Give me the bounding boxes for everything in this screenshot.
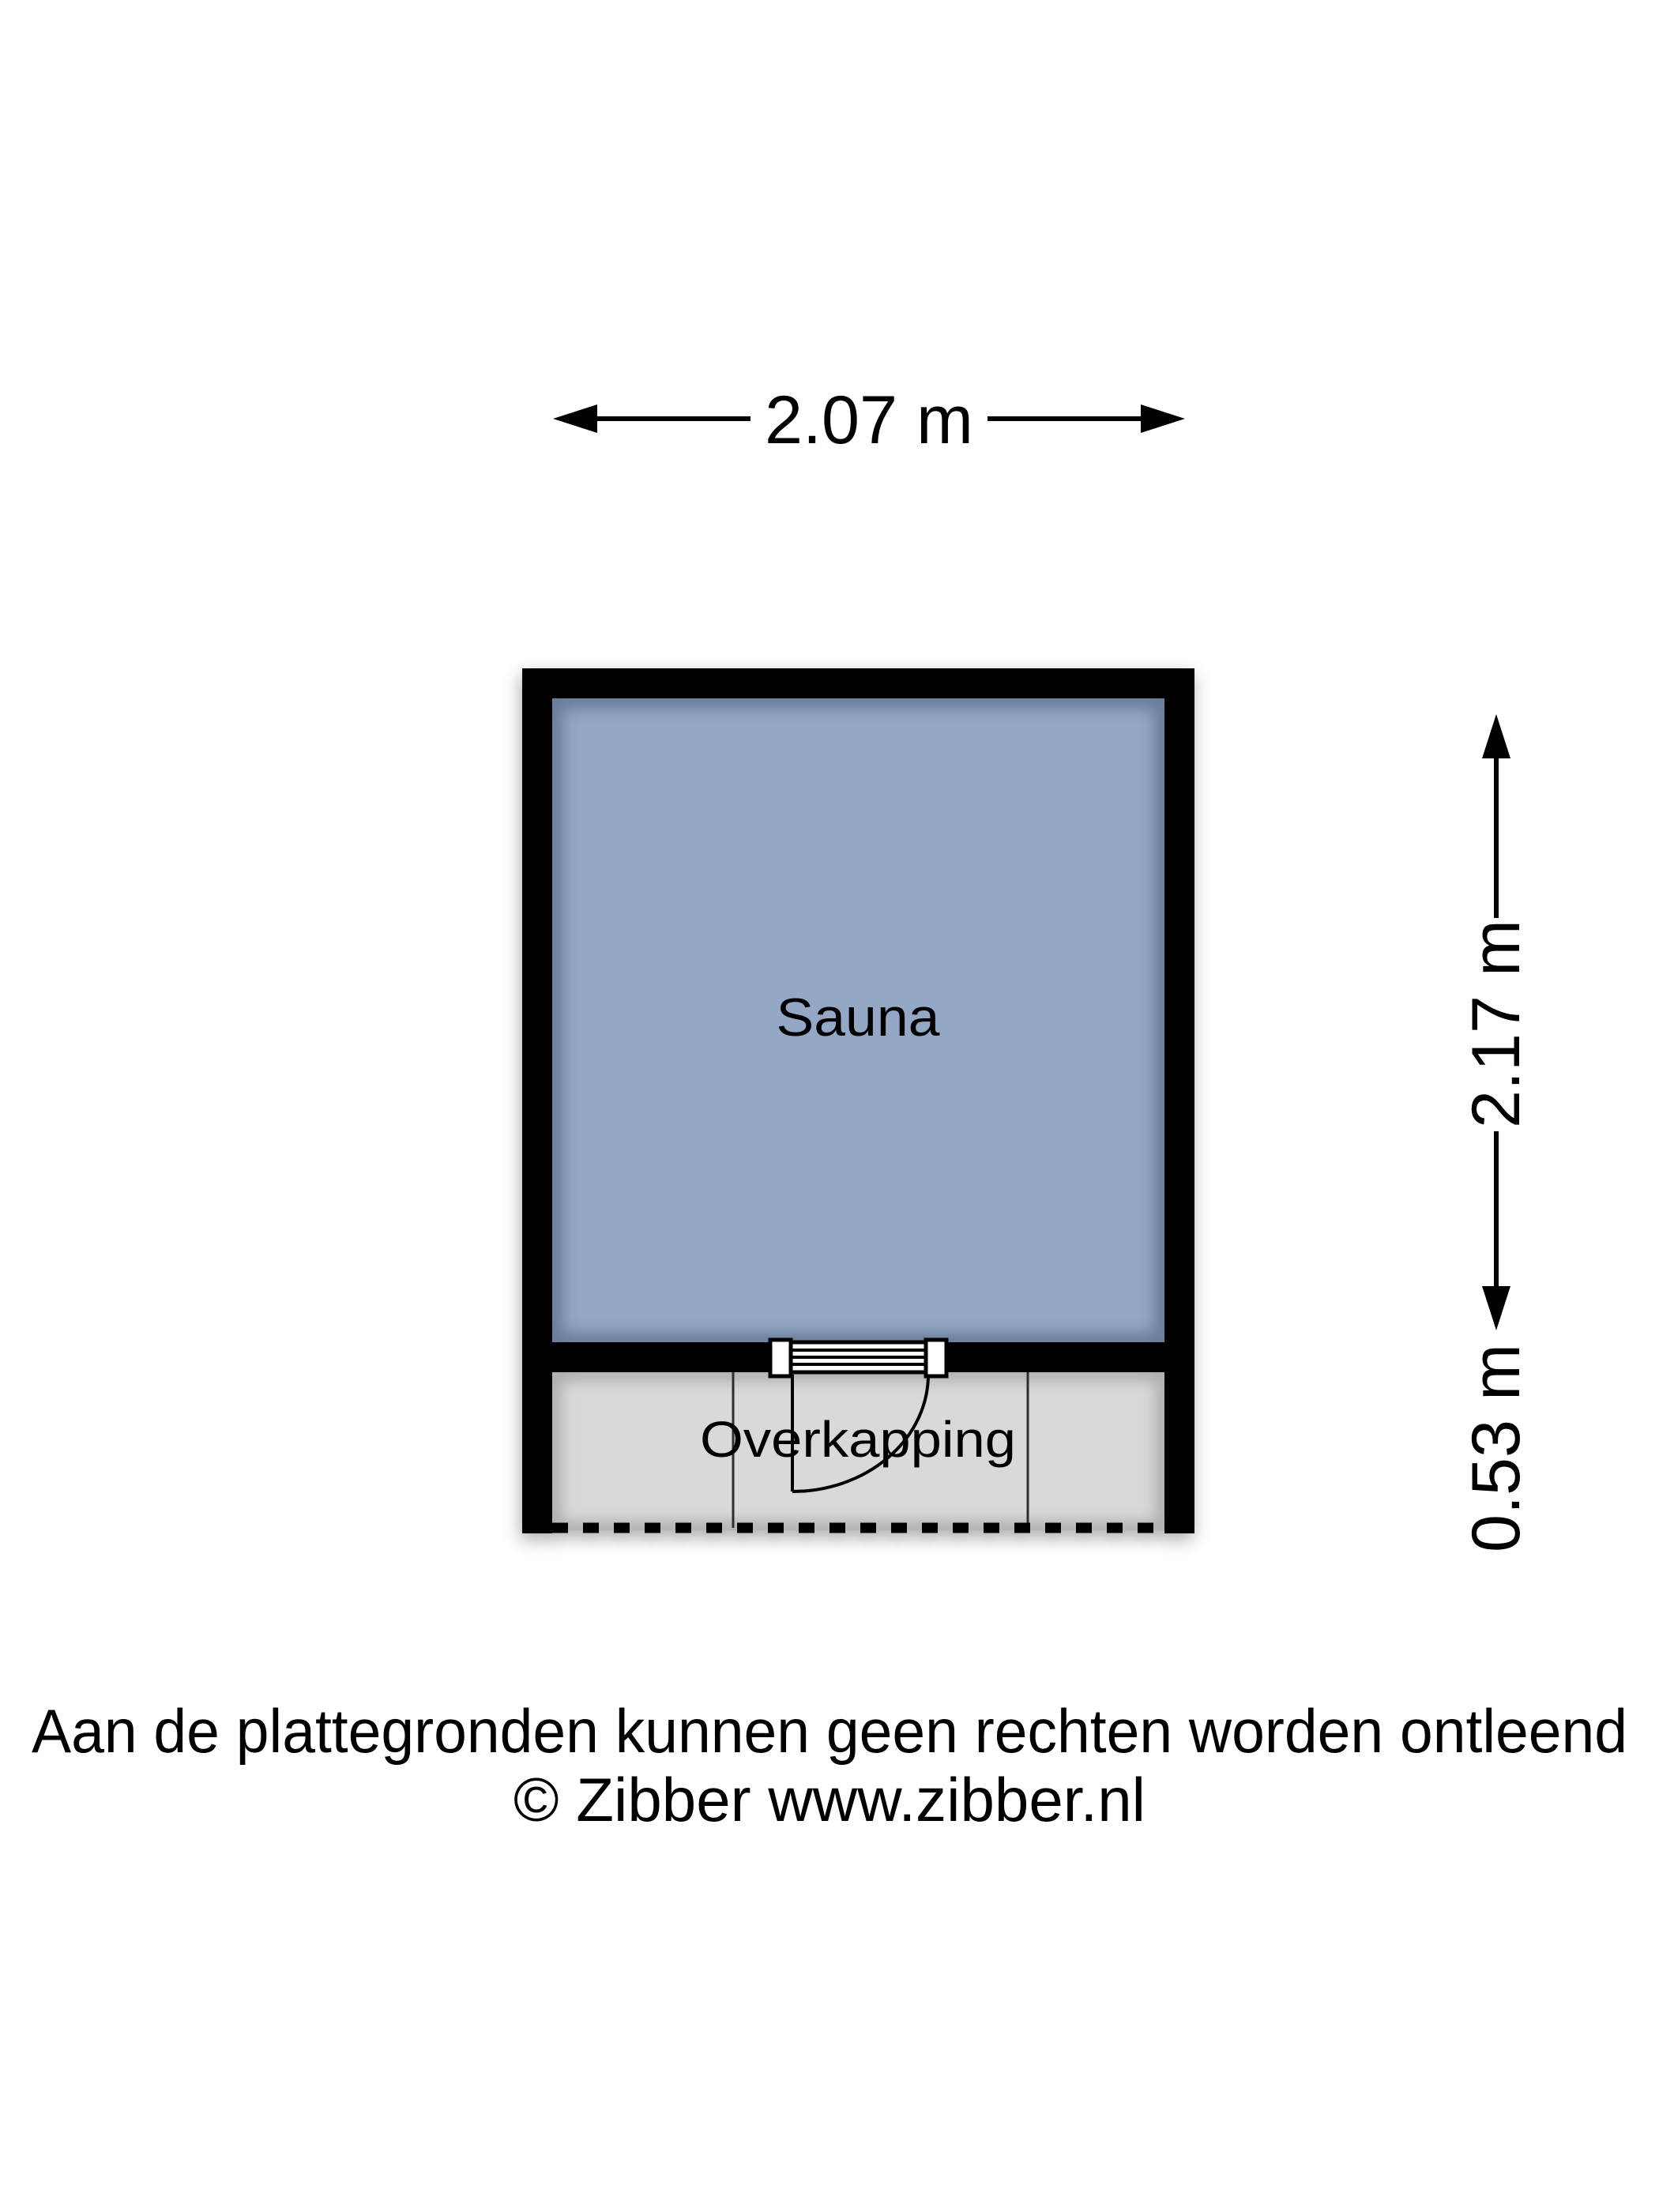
floorplan	[522, 668, 1194, 1533]
dimension-height-lower-label: 0.53 m	[1458, 1344, 1534, 1552]
floorplan-drawing: Sauna Overkapping 2.07 m 2.17 m 0.53 m A…	[0, 0, 1659, 2212]
arrowhead-up	[1482, 714, 1510, 758]
wall-left	[522, 668, 552, 1533]
room-label-sauna: Sauna	[777, 987, 940, 1048]
floorplan-page: Sauna Overkapping 2.07 m 2.17 m 0.53 m A…	[0, 0, 1659, 2212]
dimension-height-lower: 0.53 m	[1458, 1344, 1534, 1552]
wall-sauna-bottom-left	[552, 1342, 770, 1372]
dimension-height-upper-label: 2.17 m	[1458, 920, 1534, 1128]
wall-right	[1164, 668, 1194, 1533]
copyright-text: © Zibber www.zibber.nl	[513, 1765, 1145, 1834]
arrowhead-right	[1141, 404, 1185, 433]
wall-sauna-bottom-right	[946, 1342, 1164, 1372]
wall-top	[522, 668, 1194, 698]
arrowhead-down	[1482, 1286, 1510, 1330]
area-label-overkapping: Overkapping	[700, 1411, 1016, 1468]
arrowhead-left	[553, 404, 597, 433]
dimension-height-upper: 2.17 m	[1458, 714, 1534, 1330]
door-jamb-right	[926, 1340, 946, 1376]
door-jamb-left	[770, 1340, 791, 1376]
dimension-width: 2.07 m	[553, 382, 1185, 458]
dimension-width-label: 2.07 m	[765, 382, 973, 458]
disclaimer-text: Aan de plattegronden kunnen geen rechten…	[32, 1696, 1627, 1766]
